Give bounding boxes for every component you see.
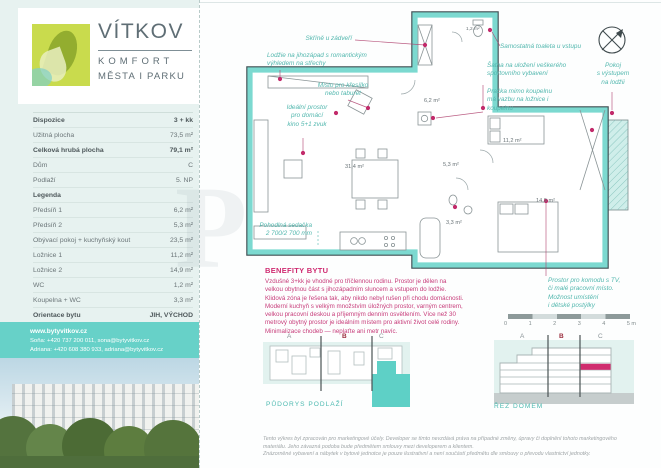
spec-row: Obývací pokoj + kuchyňský kout23,5 m² bbox=[33, 233, 193, 248]
scale-tick: 2 bbox=[553, 321, 556, 327]
brand-subtitle-2: MĚSTA I PARKU bbox=[98, 71, 185, 82]
spec-label: Ložnice 2 bbox=[33, 267, 62, 274]
logo-divider bbox=[98, 50, 192, 51]
spec-label: Užitná plocha bbox=[33, 132, 74, 139]
spec-row: Koupelna + WC3,3 m² bbox=[33, 293, 193, 308]
contact-phone-email-2[interactable]: Adriana: +420 608 380 933, adriana@bytyv… bbox=[0, 346, 199, 355]
room-area-bath: 3,3 m² bbox=[446, 220, 462, 226]
annotation-cinema: Ideální prostor pro domácí kino 5+1 zvuk bbox=[276, 104, 338, 129]
room-area-hall2: 5,3 m² bbox=[443, 162, 459, 168]
spec-row: Orientace bytuJIH, VÝCHOD bbox=[33, 308, 193, 323]
annotation-loggia: Lodžie na jihozápad s romantickým výhled… bbox=[267, 52, 385, 69]
spec-row: Podlaží5. NP bbox=[33, 173, 193, 188]
scale-tick: 4 bbox=[602, 321, 605, 327]
disclaimer-text: Tento výkres byl zpracován pro marketing… bbox=[263, 436, 655, 459]
room-area-hall1: 6,2 m² bbox=[424, 98, 440, 104]
annotation-wardrobe: Skříně u zádveří bbox=[268, 35, 352, 43]
spec-label: Dispozice bbox=[33, 117, 65, 124]
spec-label: Celková hrubá plocha bbox=[33, 147, 104, 154]
spec-label: Předsíň 2 bbox=[33, 222, 62, 229]
floor-locator-caption: PŮDORYS PODLAŽÍ bbox=[266, 401, 344, 408]
spec-label: Obývací pokoj + kuchyňský kout bbox=[33, 237, 130, 244]
website-link[interactable]: www.bytyvitkov.cz bbox=[0, 327, 199, 337]
spec-row: Předsíň 16,2 m² bbox=[33, 203, 193, 218]
spec-label: WC bbox=[33, 282, 44, 289]
spec-value: 73,5 m² bbox=[170, 132, 193, 139]
annotation-armchair: Místo pro křesílko nebo taburet bbox=[308, 82, 378, 99]
spec-value: 3 + kk bbox=[174, 117, 193, 124]
building-section-diagram bbox=[492, 331, 637, 411]
section-letter-a: A bbox=[520, 333, 524, 340]
brand-subtitle-1: KOMFORT bbox=[98, 56, 173, 67]
benefits-text: Vzdušné 3+kk je vhodné pro tříčlennou ro… bbox=[265, 278, 466, 336]
spec-row: Ložnice 214,9 m² bbox=[33, 263, 193, 278]
building-section-caption: ŘEZ DOMEM bbox=[494, 403, 543, 410]
contact-phone-email-1[interactable]: Soňa: +420 737 200 011, sona@bytyvitkov.… bbox=[0, 337, 199, 346]
spec-label: Koupelna + WC bbox=[33, 297, 81, 304]
scale-bar-labels: 0 1 2 3 4 5 m bbox=[504, 321, 636, 327]
sidebar: VÍTKOV KOMFORT MĚSTA I PARKU Dispozice3 … bbox=[0, 0, 199, 468]
spec-value: 3,3 m² bbox=[174, 297, 193, 304]
contact-strip: www.bytyvitkov.cz Soňa: +420 737 200 011… bbox=[0, 322, 199, 358]
scale-tick: 3 bbox=[578, 321, 581, 327]
spec-row: DůmC bbox=[33, 158, 193, 173]
room-area-living: 31,4 m² bbox=[345, 164, 364, 170]
scale-tick: 5 m bbox=[627, 321, 636, 327]
section-letter-c: C bbox=[379, 333, 384, 340]
spec-row: WC1,2 m² bbox=[33, 278, 193, 293]
spec-row: Předsíň 25,3 m² bbox=[33, 218, 193, 233]
scale-tick: 1 bbox=[529, 321, 532, 327]
spec-label: Podlaží bbox=[33, 177, 56, 184]
spec-label: Orientace bytu bbox=[33, 312, 81, 319]
section-letter-b: B bbox=[342, 333, 347, 340]
section-letter-c: C bbox=[598, 333, 603, 340]
room-area-bedroom2: 14,9 m² bbox=[536, 198, 555, 204]
spec-label: Předsíň 1 bbox=[33, 207, 62, 214]
spec-label: Legenda bbox=[33, 192, 61, 199]
annotation-commode: Prostor pro komodu s TV, či malé pracovn… bbox=[548, 277, 658, 310]
floor-locator-diagram bbox=[262, 331, 412, 411]
scale-bar bbox=[508, 314, 630, 319]
spec-section-header: Legenda bbox=[33, 188, 193, 203]
building-photo bbox=[0, 358, 199, 468]
room-area-wc: 1,2 m² bbox=[466, 27, 480, 32]
annotation-washer: Pračka mimo koupelnu má vazbu na ložnice… bbox=[487, 88, 587, 113]
section-letter-b: B bbox=[559, 333, 564, 340]
scale-tick: 0 bbox=[504, 321, 507, 327]
spec-value: JIH, VÝCHOD bbox=[150, 312, 193, 319]
spec-label: Ložnice 1 bbox=[33, 252, 62, 259]
annotation-sofa: Pohodlná sedačka 2 700/2 700 mm bbox=[244, 222, 312, 239]
brand-name: VÍTKOV bbox=[98, 20, 184, 44]
spec-row: Ložnice 111,2 m² bbox=[33, 248, 193, 263]
specs-table: Dispozice3 + kk Užitná plocha73,5 m² Cel… bbox=[33, 112, 193, 323]
logo-leaf-icon bbox=[32, 24, 90, 86]
spec-value: 79,1 m² bbox=[170, 147, 193, 154]
grass bbox=[0, 456, 199, 468]
logo: VÍTKOV KOMFORT MĚSTA I PARKU bbox=[18, 8, 199, 104]
leaf-petal bbox=[32, 68, 52, 86]
annotation-room-loggia: Pokoj s výstupem na lodžii bbox=[578, 62, 648, 87]
watermark-letter: P bbox=[175, 160, 247, 296]
benefits-block: BENEFITY BYTU Vzdušné 3+kk je vhodné pro… bbox=[265, 266, 466, 336]
benefits-title: BENEFITY BYTU bbox=[265, 266, 466, 275]
brochure-page: VÍTKOV KOMFORT MĚSTA I PARKU Dispozice3 … bbox=[0, 0, 661, 468]
spec-row: Dispozice3 + kk bbox=[33, 113, 193, 128]
room-area-bedroom1: 11,2 m² bbox=[503, 138, 522, 144]
spec-row: Užitná plocha73,5 m² bbox=[33, 128, 193, 143]
annotation-toilet: Samostatná toaleta u vstupu bbox=[500, 43, 610, 51]
spec-row: Celková hrubá plocha79,1 m² bbox=[33, 143, 193, 158]
spec-label: Dům bbox=[33, 162, 47, 169]
section-letter-a: A bbox=[287, 333, 291, 340]
